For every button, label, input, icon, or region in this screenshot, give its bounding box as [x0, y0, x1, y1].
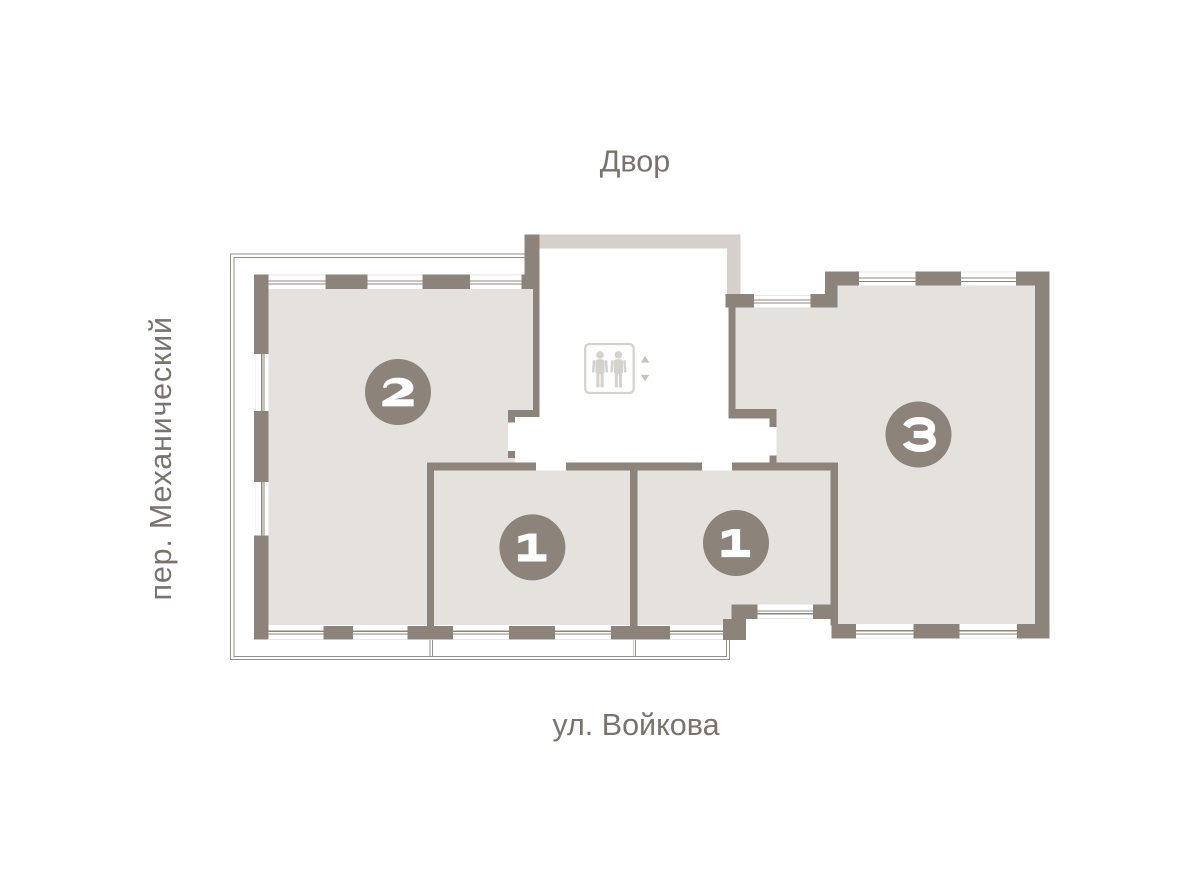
svg-text:пер. Механический: пер. Механический	[144, 316, 178, 600]
svg-text:ул. Войкова: ул. Войкова	[552, 708, 719, 742]
svg-text:Двор: Двор	[600, 145, 670, 179]
